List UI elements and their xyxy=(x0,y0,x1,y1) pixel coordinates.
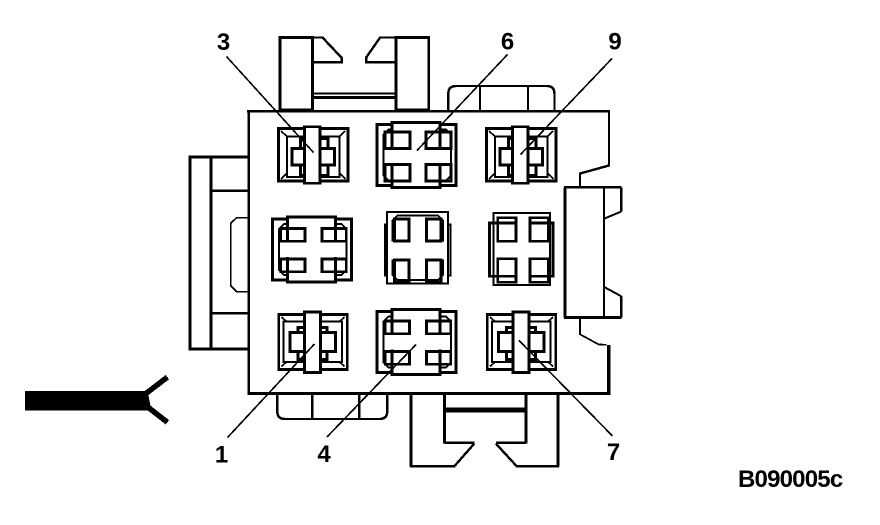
svg-text:7: 7 xyxy=(607,439,620,466)
svg-text:4: 4 xyxy=(317,441,331,468)
svg-text:B090005c: B090005c xyxy=(738,466,843,493)
svg-text:9: 9 xyxy=(608,29,621,56)
svg-text:6: 6 xyxy=(501,29,514,56)
svg-text:1: 1 xyxy=(215,442,228,469)
svg-text:3: 3 xyxy=(217,29,230,56)
